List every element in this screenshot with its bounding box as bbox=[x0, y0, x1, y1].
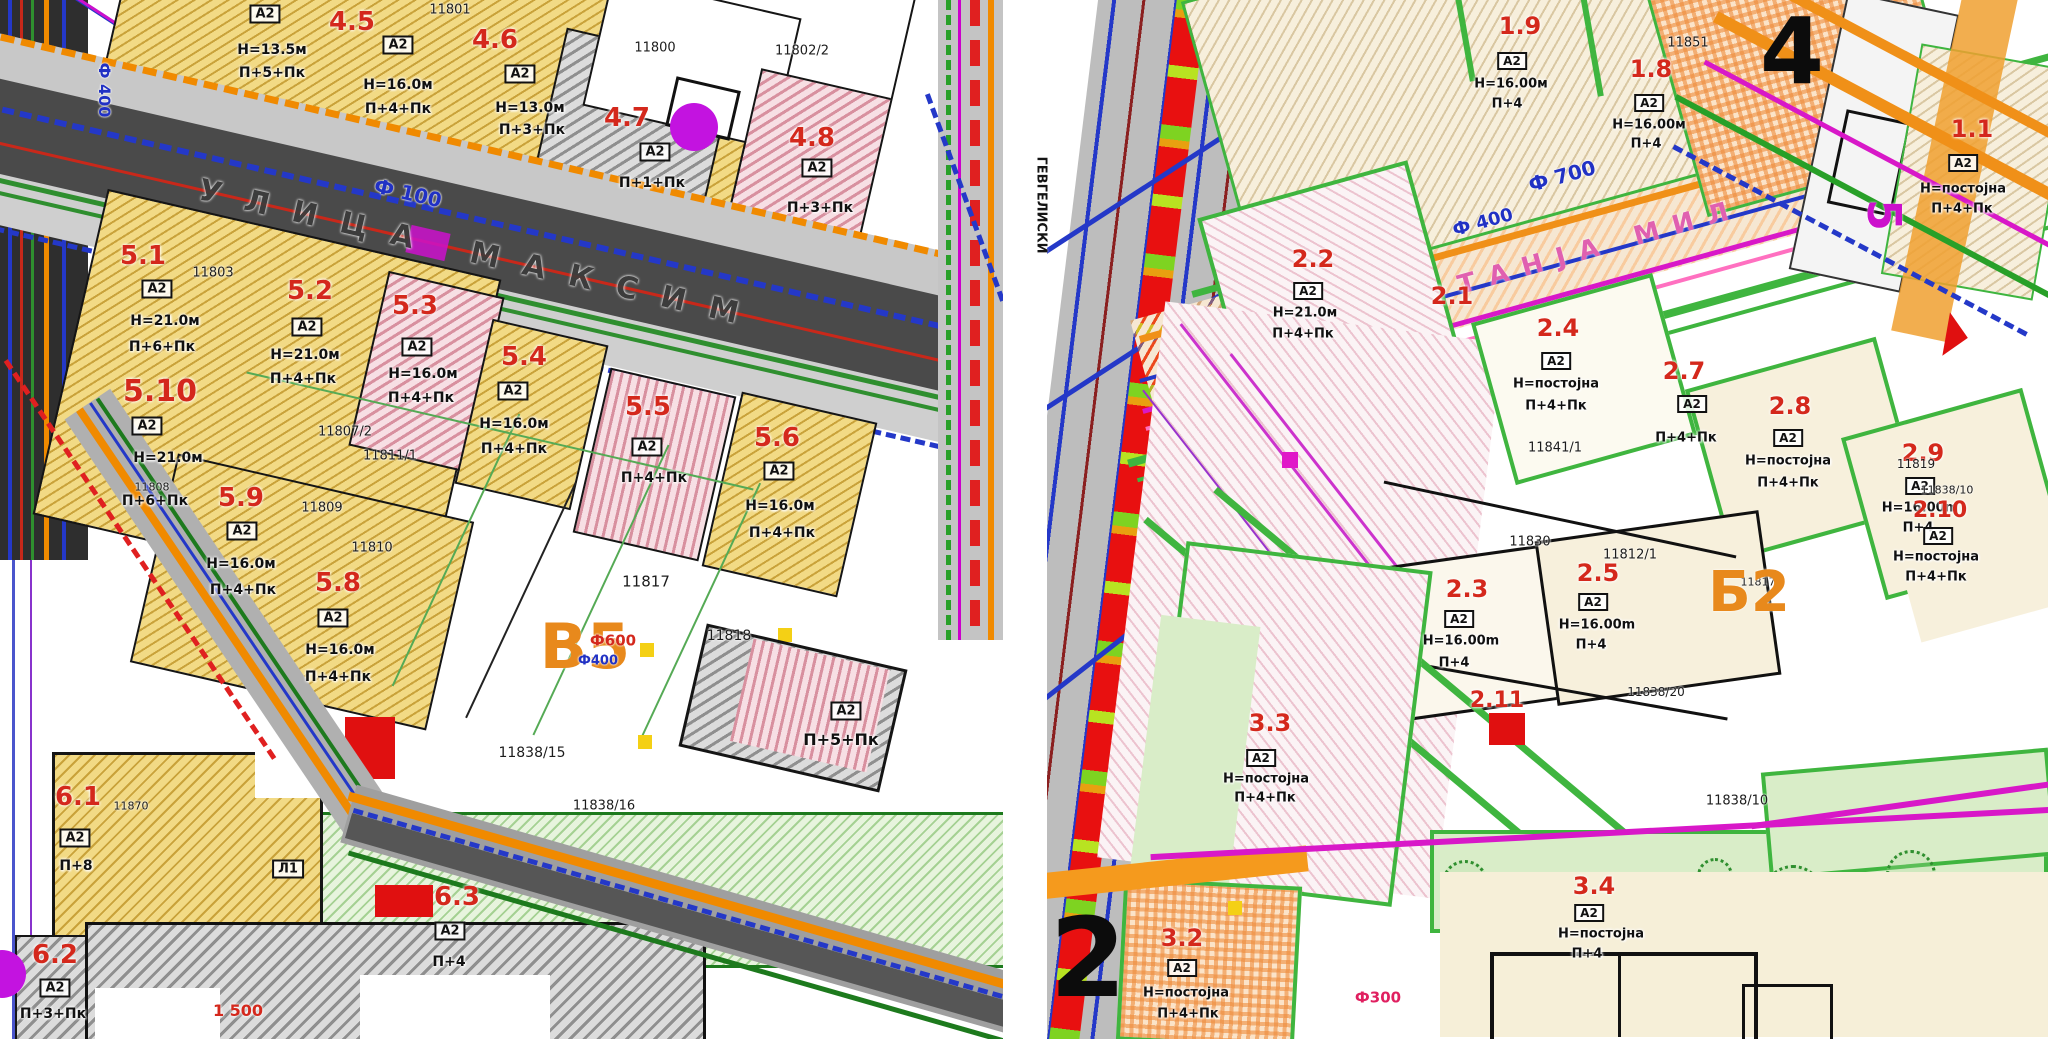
right-num-label-11830: 11830 bbox=[1509, 536, 1550, 549]
left-box-label-А2: А2 bbox=[497, 382, 528, 401]
right-box-label-А2: А2 bbox=[1578, 593, 1608, 611]
left-spec-label-Н=16.0м: Н=16.0м bbox=[305, 643, 374, 657]
left-util-label-Ф400: Ф400 bbox=[578, 655, 618, 668]
map-panel-left[interactable] bbox=[0, 0, 1005, 1039]
right-red-label-1.8: 1.8 bbox=[1630, 57, 1673, 81]
marker-flag-red bbox=[1489, 713, 1525, 745]
left-num-label-11811/1: 11811/1 bbox=[363, 450, 417, 463]
right-spec-label-Н=постојна: Н=постојна bbox=[1558, 928, 1644, 941]
left-spec-label-Н=13.0м: Н=13.0м bbox=[495, 101, 564, 115]
right-red-label-3.3: 3.3 bbox=[1249, 711, 1292, 735]
left-red-label-1-500: 1 500 bbox=[213, 1003, 263, 1019]
right-spec-label-Н=постојна: Н=постојна bbox=[1143, 987, 1229, 1000]
left-spec-label-Н=21.0м: Н=21.0м bbox=[130, 314, 199, 328]
left-num-label-11800: 11800 bbox=[634, 42, 675, 55]
right-spec-label-Н=постојна: Н=постојна bbox=[1893, 551, 1979, 564]
right-red-label-2.8: 2.8 bbox=[1769, 394, 1812, 418]
left-red-label-4.7: 4.7 bbox=[604, 105, 650, 131]
right-zone-label-Б2: Б2 bbox=[1708, 565, 1790, 621]
left-util-label-Ф600: Ф600 bbox=[590, 634, 636, 649]
right-red-label-2.2: 2.2 bbox=[1292, 247, 1335, 271]
right-num-label-11841/1: 11841/1 bbox=[1528, 442, 1582, 455]
right-spec-label-П+4+Пк: П+4+Пк bbox=[1931, 203, 1992, 216]
right-vert-label-5: 5 bbox=[1861, 199, 1907, 231]
road-right-orange bbox=[988, 0, 994, 640]
left-red-label-5.6: 5.6 bbox=[754, 425, 800, 451]
left-spec-label-П+4+Пк: П+4+Пк bbox=[749, 526, 815, 540]
left-red-label-4.8: 4.8 bbox=[789, 125, 835, 151]
right-red-label-2.5: 2.5 bbox=[1577, 561, 1620, 585]
left-box-label-А2: А2 bbox=[59, 829, 90, 848]
left-box-label-А2: А2 bbox=[631, 438, 662, 457]
building-3.4-outline bbox=[1490, 952, 1758, 1039]
left-spec-label-П+4+Пк: П+4+Пк bbox=[481, 442, 547, 456]
left-num-label-11838/16: 11838/16 bbox=[573, 800, 635, 813]
left-spec-label-П+3+Пк: П+3+Пк bbox=[787, 201, 853, 215]
left-red-label-4.5: 4.5 bbox=[329, 9, 375, 35]
left-red-label-5.8: 5.8 bbox=[315, 570, 361, 596]
right-spec-label-П+4+Пк: П+4+Пк bbox=[1757, 477, 1818, 490]
right-spec-label-П+4+Пк: П+4+Пк bbox=[1157, 1008, 1218, 1021]
left-spec-label-П+6+Пк: П+6+Пк bbox=[129, 340, 195, 354]
left-box-label-Л1: Л1 bbox=[272, 860, 304, 879]
right-box-label-А2: А2 bbox=[1948, 154, 1978, 172]
left-num-label-11808: 11808 bbox=[135, 482, 170, 493]
left-num-label-11802/2: 11802/2 bbox=[775, 45, 829, 58]
right-red-label-1.1: 1.1 bbox=[1951, 117, 1994, 141]
left-spec-label-П+4+Пк: П+4+Пк bbox=[621, 471, 687, 485]
dot-yellow2 bbox=[638, 735, 652, 749]
left-spec-label-П+4+Пк: П+4+Пк bbox=[210, 583, 276, 597]
left-num-label-11807/2: 11807/2 bbox=[318, 426, 372, 439]
left-spec-label-П+4+Пк: П+4+Пк bbox=[270, 372, 336, 386]
right-num-label-11851: 11851 bbox=[1667, 37, 1708, 50]
right-spec-label-П+4+Пк: П+4+Пк bbox=[1234, 792, 1295, 805]
right-num-label-11838/10: 11838/10 bbox=[1921, 485, 1974, 496]
right-box-label-А2: А2 bbox=[1773, 429, 1803, 447]
left-box-label-А2: А2 bbox=[830, 702, 861, 721]
left-red-label-4.6: 4.6 bbox=[472, 27, 518, 53]
right-red-label-2.10: 2.10 bbox=[1913, 500, 1967, 522]
left-spec-label-П+4+Пк: П+4+Пк bbox=[388, 391, 454, 405]
right-spec-label-Н=постојна: Н=постојна bbox=[1745, 455, 1831, 468]
right-box-label-А2: А2 bbox=[1677, 395, 1707, 413]
right-spec-label-Н=16.00m: Н=16.00m bbox=[1423, 635, 1499, 648]
right-spec-label-П+4+Пк: П+4+Пк bbox=[1905, 571, 1966, 584]
left-box-label-А2: А2 bbox=[801, 159, 832, 178]
left-num-label-11803: 11803 bbox=[192, 267, 233, 280]
right-big-label-4: 4 bbox=[1760, 6, 1824, 98]
right-spec-label-П+4: П+4 bbox=[1631, 138, 1662, 151]
right-red-label-3.4: 3.4 bbox=[1573, 874, 1616, 898]
left-num-label-11818: 11818 bbox=[707, 629, 752, 643]
marker-rect-red2 bbox=[375, 885, 433, 917]
left-spec-label-Н=16.0м: Н=16.0м bbox=[745, 499, 814, 513]
building-3.4-divider bbox=[1618, 952, 1621, 1037]
left-box-label-А2: А2 bbox=[401, 338, 432, 357]
right-red-label-2.3: 2.3 bbox=[1446, 577, 1489, 601]
right-red-label-1.9: 1.9 bbox=[1499, 14, 1542, 38]
left-box-label-А2: А2 bbox=[291, 318, 322, 337]
right-box-label-А2: А2 bbox=[1541, 352, 1571, 370]
left-red-label-5.9: 5.9 bbox=[218, 485, 264, 511]
right-red-label-2.11: 2.11 bbox=[1470, 690, 1524, 712]
left-spec-label-П+6+Пк: П+6+Пк bbox=[122, 494, 188, 508]
map-panel-right[interactable] bbox=[1045, 0, 2048, 1039]
right-box-label-А2: А2 bbox=[1923, 527, 1953, 545]
road-right-green-dashed bbox=[946, 0, 951, 640]
left-box-label-А2: А2 bbox=[39, 979, 70, 998]
left-num-label-11870: 11870 bbox=[114, 801, 149, 812]
left-spec-label-П+8: П+8 bbox=[59, 859, 92, 873]
right-spec-label-Н=16.00m: Н=16.00m bbox=[1559, 619, 1635, 632]
left-box-label-А2: А2 bbox=[141, 280, 172, 299]
dot-yellow-right bbox=[1228, 901, 1242, 915]
right-num-label-11838/20: 11838/20 bbox=[1627, 686, 1685, 698]
right-spec-label-П+4+Пк: П+4+Пк bbox=[1272, 328, 1333, 341]
left-box-label-А2: А2 bbox=[249, 5, 280, 24]
left-box-label-А2: А2 bbox=[382, 36, 413, 55]
right-spec-label-П+4: П+4 bbox=[1492, 98, 1523, 111]
left-box-label-А2: А2 bbox=[131, 417, 162, 436]
left-spec-label-П+4: П+4 bbox=[432, 955, 465, 969]
left-red-label-6.2: 6.2 bbox=[32, 942, 78, 968]
left-num-label-11801: 11801 bbox=[429, 4, 470, 17]
right-spec-label-Н=постојна: Н=постојна bbox=[1513, 378, 1599, 391]
right-spec-label-П+4+Пк: П+4+Пк bbox=[1525, 400, 1586, 413]
right-red-label-2.7: 2.7 bbox=[1663, 359, 1706, 383]
left-spec-label-П+5+Пк: П+5+Пк bbox=[239, 66, 305, 80]
left-spec-label-П+4+Пк: П+4+Пк bbox=[305, 670, 371, 684]
right-spec-label-П+4+Пк: П+4+Пк bbox=[1655, 432, 1716, 445]
right-box-label-А2: А2 bbox=[1574, 904, 1604, 922]
left-box-label-А2: А2 bbox=[639, 143, 670, 162]
left-num-label-11838/15: 11838/15 bbox=[498, 746, 565, 760]
right-box-label-А2: А2 bbox=[1497, 52, 1527, 70]
left-box-label-А2: А2 bbox=[226, 522, 257, 541]
left-spec-label-Н=16.0м: Н=16.0м bbox=[479, 417, 548, 431]
right-red-label-3.2: 3.2 bbox=[1161, 926, 1204, 950]
marker-circle-magenta bbox=[670, 103, 718, 151]
left-red-label-5.3: 5.3 bbox=[392, 293, 438, 319]
right-spec-label-Н=16.00м: Н=16.00м bbox=[1612, 119, 1686, 132]
right-num-label-11838/10: 11838/10 bbox=[1706, 795, 1768, 808]
plan-canvas: 118011180011802/24.54.64.74.8А2Н=13.5мП+… bbox=[0, 0, 2048, 1039]
left-util-label-Ф-400: Ф 400 bbox=[96, 63, 112, 118]
right-big-label-2: 2 bbox=[1050, 903, 1127, 1013]
left-red-label-5.1: 5.1 bbox=[120, 243, 166, 269]
left-red-label-6.3: 6.3 bbox=[434, 884, 480, 910]
marker-square-magenta bbox=[1282, 452, 1298, 468]
left-red-label-5.4: 5.4 bbox=[501, 344, 547, 370]
right-red-label-2.4: 2.4 bbox=[1537, 316, 1580, 340]
building-bottom-notch1 bbox=[95, 988, 220, 1039]
right-spec-label-П+4: П+4 bbox=[1572, 948, 1603, 961]
left-spec-label-П+3+Пк: П+3+Пк bbox=[20, 1007, 86, 1021]
left-spec-label-Н=13.5м: Н=13.5м bbox=[237, 43, 306, 57]
right-spec-label-Н=постојна: Н=постојна bbox=[1920, 183, 2006, 196]
left-box-label-А2: А2 bbox=[434, 922, 465, 941]
left-spec-label-Н=16.0м: Н=16.0м bbox=[363, 78, 432, 92]
right-vert-label-ГЕВГЕЛИСКИ: ГЕВГЕЛИСКИ bbox=[1035, 157, 1048, 254]
left-num-label-11810: 11810 bbox=[351, 542, 392, 555]
left-spec-label-Н=21.0м: Н=21.0м bbox=[133, 451, 202, 465]
left-spec-label-Н=16.0м: Н=16.0м bbox=[206, 557, 275, 571]
right-spec-label-Н=16.00м: Н=16.00м bbox=[1474, 78, 1548, 91]
right-box-label-А2: А2 bbox=[1634, 94, 1664, 112]
right-red-label-2.1: 2.1 bbox=[1431, 284, 1474, 308]
right-box-label-А2: А2 bbox=[1246, 749, 1276, 767]
left-spec-label-П+4+Пк: П+4+Пк bbox=[365, 102, 431, 116]
left-spec-label-П+3+Пк: П+3+Пк bbox=[499, 123, 565, 137]
left-spec-label-Н=21.0м: Н=21.0м bbox=[270, 348, 339, 362]
dot-yellow1 bbox=[640, 643, 654, 657]
building-bottom-notch2 bbox=[360, 975, 550, 1039]
right-util-label-Ф300: Ф300 bbox=[1355, 991, 1401, 1006]
right-spec-label-П+4: П+4 bbox=[1439, 657, 1470, 670]
left-num-label-11817: 11817 bbox=[622, 575, 670, 590]
left-box-label-А2: А2 bbox=[504, 65, 535, 84]
building-3.4-annex bbox=[1742, 984, 1833, 1039]
right-spec-label-П+4: П+4 bbox=[1576, 639, 1607, 652]
left-red-label-5.5: 5.5 bbox=[625, 394, 671, 420]
left-spec-label-Н=16.0м: Н=16.0м bbox=[388, 367, 457, 381]
left-red-label-5.10: 5.10 bbox=[123, 377, 197, 407]
road-right-red-dashes bbox=[970, 0, 980, 640]
right-box-label-А2: А2 bbox=[1293, 282, 1323, 300]
left-box-label-А2: А2 bbox=[763, 462, 794, 481]
right-box-label-А2: А2 bbox=[1167, 959, 1197, 977]
right-num-label-11819: 11819 bbox=[1897, 458, 1935, 470]
left-spec-label-П+1+Пк: П+1+Пк bbox=[619, 176, 685, 190]
left-red-label-6.1: 6.1 bbox=[55, 784, 101, 810]
right-spec-label-Н=постојна: Н=постојна bbox=[1223, 773, 1309, 786]
left-red-label-5.2: 5.2 bbox=[287, 278, 333, 304]
left-spec-label-П+5+Пк: П+5+Пк bbox=[803, 732, 879, 748]
road-right-magenta bbox=[958, 0, 961, 640]
right-box-label-А2: А2 bbox=[1444, 610, 1474, 628]
left-num-label-11809: 11809 bbox=[301, 502, 342, 515]
right-spec-label-Н=21.0м: Н=21.0м bbox=[1273, 307, 1337, 320]
left-box-label-А2: А2 bbox=[317, 609, 348, 628]
